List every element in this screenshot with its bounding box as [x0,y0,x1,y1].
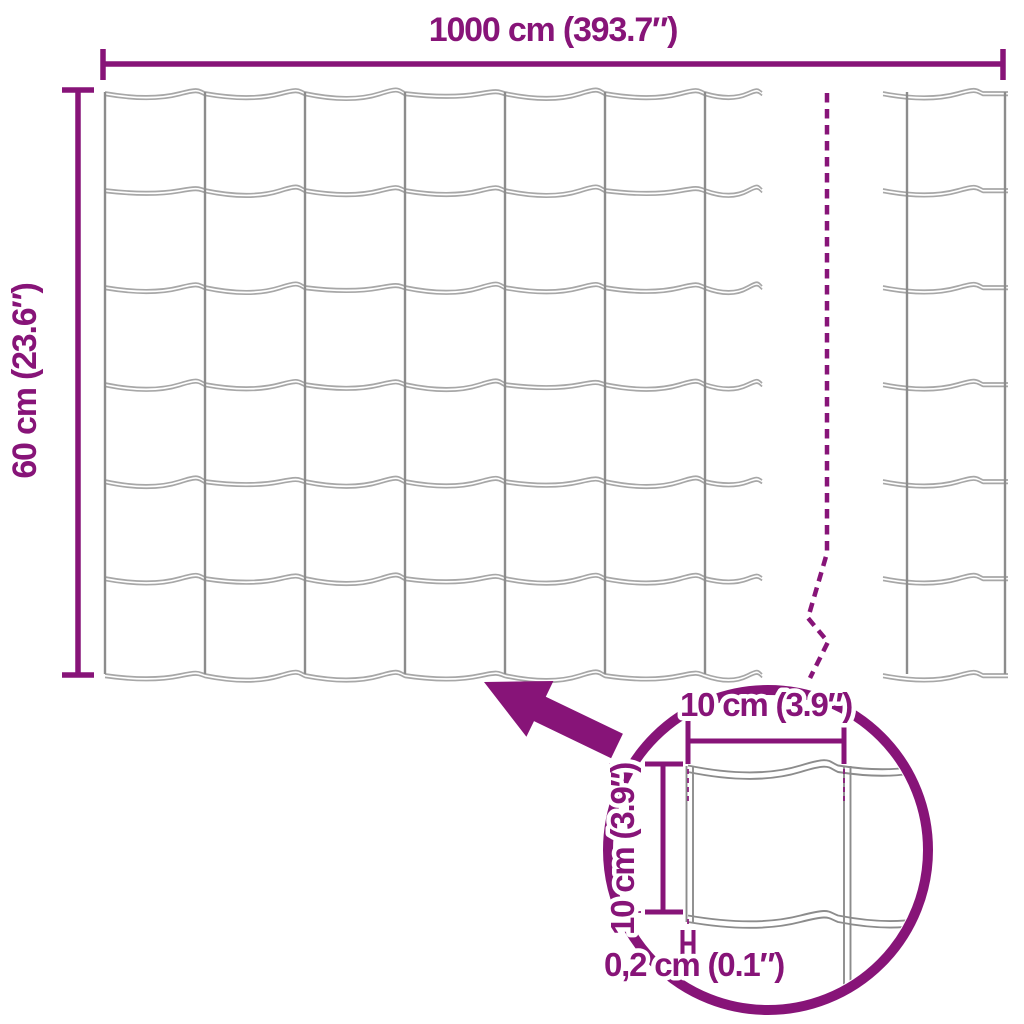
wire-horizontal [105,674,762,683]
wire-horizontal [688,917,965,927]
total-width-label: 1000 cm (393.7″) [429,11,677,49]
wire-horizontal [883,480,1008,488]
mesh-cell-width-label: 10 cm (3.9″) [680,686,852,723]
wire-horizontal [883,674,1008,682]
product-dimension-diagram: 1000 cm (393.7″) 60 cm (23.6″) [0,0,1024,1024]
wire-horizontal [883,189,1008,197]
fence-mesh [105,88,762,682]
left-dimension-line: 60 cm (23.6″) [6,90,94,675]
wire-horizontal [105,92,762,100]
fence-mesh-right-piece [883,89,1008,682]
wire-horizontal [883,286,1008,294]
diagram-canvas: 1000 cm (393.7″) 60 cm (23.6″) [0,0,1024,1024]
wire-horizontal [883,383,1008,391]
wire-horizontal [688,911,965,921]
mesh-cell-height-label: 10 cm (3.9″) [604,763,641,935]
top-dimension-line: 1000 cm (393.7″) [103,11,1003,80]
wire-horizontal [883,92,1008,99]
zoom-arrow [484,681,623,758]
zoom-lens: 10 cm (3.9″) 10 cm (3.9″) 0,2 cm (0.1″) [604,686,965,1010]
mesh-break-dashed-line [808,93,828,678]
wire-thickness-label: 0,2 cm (0.1″) [604,946,784,983]
wire-horizontal [883,577,1008,585]
total-height-label: 60 cm (23.6″) [6,283,44,478]
